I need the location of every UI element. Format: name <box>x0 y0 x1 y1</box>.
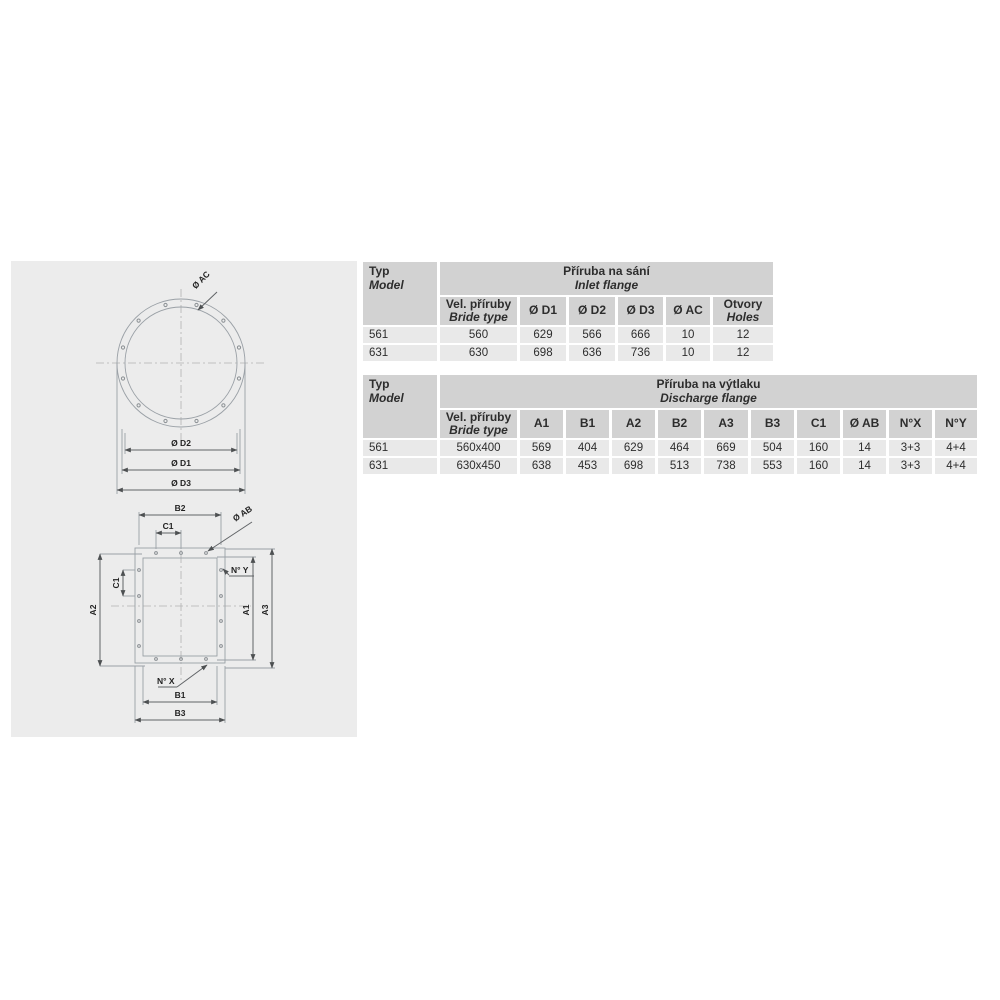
inlet-flange-column-header: Ø AC <box>666 297 710 325</box>
inlet-flange-column-header: Vel. přírubyBride type <box>440 297 517 325</box>
discharge-flange-value-cell: 464 <box>658 440 701 456</box>
inlet-flange-row: 5615606295666661012 <box>363 327 773 343</box>
drawing-panel: Ø D2 Ø D1 Ø D3 Ø AC <box>11 261 357 737</box>
discharge-flange-value-cell: 698 <box>612 458 655 474</box>
discharge-flange-value-cell: 160 <box>797 440 840 456</box>
inlet-flange-value-cell: 10 <box>666 327 710 343</box>
discharge-flange-column-header: C1 <box>797 410 840 438</box>
discharge-flange-value-cell: 14 <box>843 458 886 474</box>
inlet-flange-value-cell: 629 <box>520 327 566 343</box>
discharge-flange-value-cell: 160 <box>797 458 840 474</box>
inlet-flange-table: TypModelPříruba na sáníInlet flangeVel. … <box>360 260 776 363</box>
discharge-flange-table: TypModelPříruba na výtlakuDischarge flan… <box>360 373 980 476</box>
inlet-flange-body: 56156062956666610126316306986367361012 <box>363 327 773 361</box>
inlet-flange-column-header: OtvoryHoles <box>713 297 773 325</box>
dim-label-ac: Ø AC <box>190 269 212 291</box>
inlet-flange-value-cell: 630 <box>440 345 517 361</box>
inlet-flange-column-header: Ø D1 <box>520 297 566 325</box>
dim-label-c1-left: C1 <box>111 577 121 588</box>
discharge-flange-column-header: A3 <box>704 410 748 438</box>
discharge-flange-value-cell: 569 <box>520 440 563 456</box>
discharge-flange-value-cell: 453 <box>566 458 609 474</box>
discharge-flange-row: 631630x450638453698513738553160143+34+4 <box>363 458 977 474</box>
inlet-flange-value-cell: 698 <box>520 345 566 361</box>
discharge-flange-value-cell: 4+4 <box>935 458 977 474</box>
discharge-flange-value-cell: 629 <box>612 440 655 456</box>
discharge-flange-model-cell: 561 <box>363 440 437 456</box>
inlet-flange-model-cell: 631 <box>363 345 437 361</box>
dim-label-d2: Ø D2 <box>171 438 191 448</box>
discharge-flange-column-header: N°X <box>889 410 932 438</box>
discharge-flange-value-cell: 553 <box>751 458 794 474</box>
discharge-flange-column-header: N°Y <box>935 410 977 438</box>
discharge-flange-value-cell: 560x400 <box>440 440 517 456</box>
discharge-flange-column-header: Vel. přírubyBride type <box>440 410 517 438</box>
discharge-flange-column-header: B2 <box>658 410 701 438</box>
inlet-flange-column-header: Ø D2 <box>569 297 615 325</box>
dim-label-ab: Ø AB <box>231 504 254 524</box>
discharge-flange-column-header: B1 <box>566 410 609 438</box>
dim-label-c1-top: C1 <box>163 521 174 531</box>
inlet-flange-title: Příruba na sáníInlet flange <box>440 262 773 295</box>
inlet-flange-model-header: TypModel <box>363 262 437 325</box>
dim-label-b3: B3 <box>175 708 186 718</box>
inlet-flange-column-header: Ø D3 <box>618 297 663 325</box>
dim-label-a2: A2 <box>88 604 98 615</box>
discharge-flange-value-cell: 638 <box>520 458 563 474</box>
discharge-flange-value-cell: 3+3 <box>889 440 932 456</box>
dim-label-d3: Ø D3 <box>171 478 191 488</box>
datasheet-page: Ø D2 Ø D1 Ø D3 Ø AC <box>0 0 1000 1000</box>
discharge-flange-column-header: A1 <box>520 410 563 438</box>
dim-label-b1: B1 <box>175 690 186 700</box>
discharge-flange-column-header: A2 <box>612 410 655 438</box>
discharge-flange-model-header: TypModel <box>363 375 437 438</box>
discharge-flange-diagram: B2 C1 Ø AB N° Y A2 <box>88 503 275 723</box>
dim-label-nx: N° X <box>157 676 175 686</box>
discharge-flange-column-header: B3 <box>751 410 794 438</box>
dim-label-ny: N° Y <box>231 565 249 575</box>
inlet-flange-model-cell: 561 <box>363 327 437 343</box>
inlet-flange-diagram: Ø D2 Ø D1 Ø D3 Ø AC <box>96 269 267 494</box>
inlet-flange-value-cell: 10 <box>666 345 710 361</box>
inlet-flange-value-cell: 736 <box>618 345 663 361</box>
discharge-flange-value-cell: 4+4 <box>935 440 977 456</box>
inlet-flange-value-cell: 636 <box>569 345 615 361</box>
discharge-flange-model-cell: 631 <box>363 458 437 474</box>
inlet-flange-value-cell: 566 <box>569 327 615 343</box>
discharge-flange-title: Příruba na výtlakuDischarge flange <box>440 375 977 408</box>
inlet-flange-value-cell: 560 <box>440 327 517 343</box>
discharge-flange-value-cell: 404 <box>566 440 609 456</box>
dim-label-a1: A1 <box>241 604 251 615</box>
discharge-flange-body: 561560x400569404629464669504160143+34+46… <box>363 440 977 474</box>
discharge-flange-value-cell: 630x450 <box>440 458 517 474</box>
discharge-flange-value-cell: 669 <box>704 440 748 456</box>
discharge-flange-value-cell: 14 <box>843 440 886 456</box>
discharge-flange-value-cell: 513 <box>658 458 701 474</box>
dim-label-a3: A3 <box>260 604 270 615</box>
dim-label-b2: B2 <box>175 503 186 513</box>
discharge-flange-value-cell: 738 <box>704 458 748 474</box>
dim-label-d1: Ø D1 <box>171 458 191 468</box>
flange-drawing: Ø D2 Ø D1 Ø D3 Ø AC <box>11 261 357 737</box>
discharge-flange-value-cell: 3+3 <box>889 458 932 474</box>
inlet-flange-value-cell: 12 <box>713 345 773 361</box>
discharge-flange-row: 561560x400569404629464669504160143+34+4 <box>363 440 977 456</box>
discharge-flange-value-cell: 504 <box>751 440 794 456</box>
inlet-flange-row: 6316306986367361012 <box>363 345 773 361</box>
inlet-flange-value-cell: 12 <box>713 327 773 343</box>
inlet-flange-value-cell: 666 <box>618 327 663 343</box>
discharge-flange-column-header: Ø AB <box>843 410 886 438</box>
